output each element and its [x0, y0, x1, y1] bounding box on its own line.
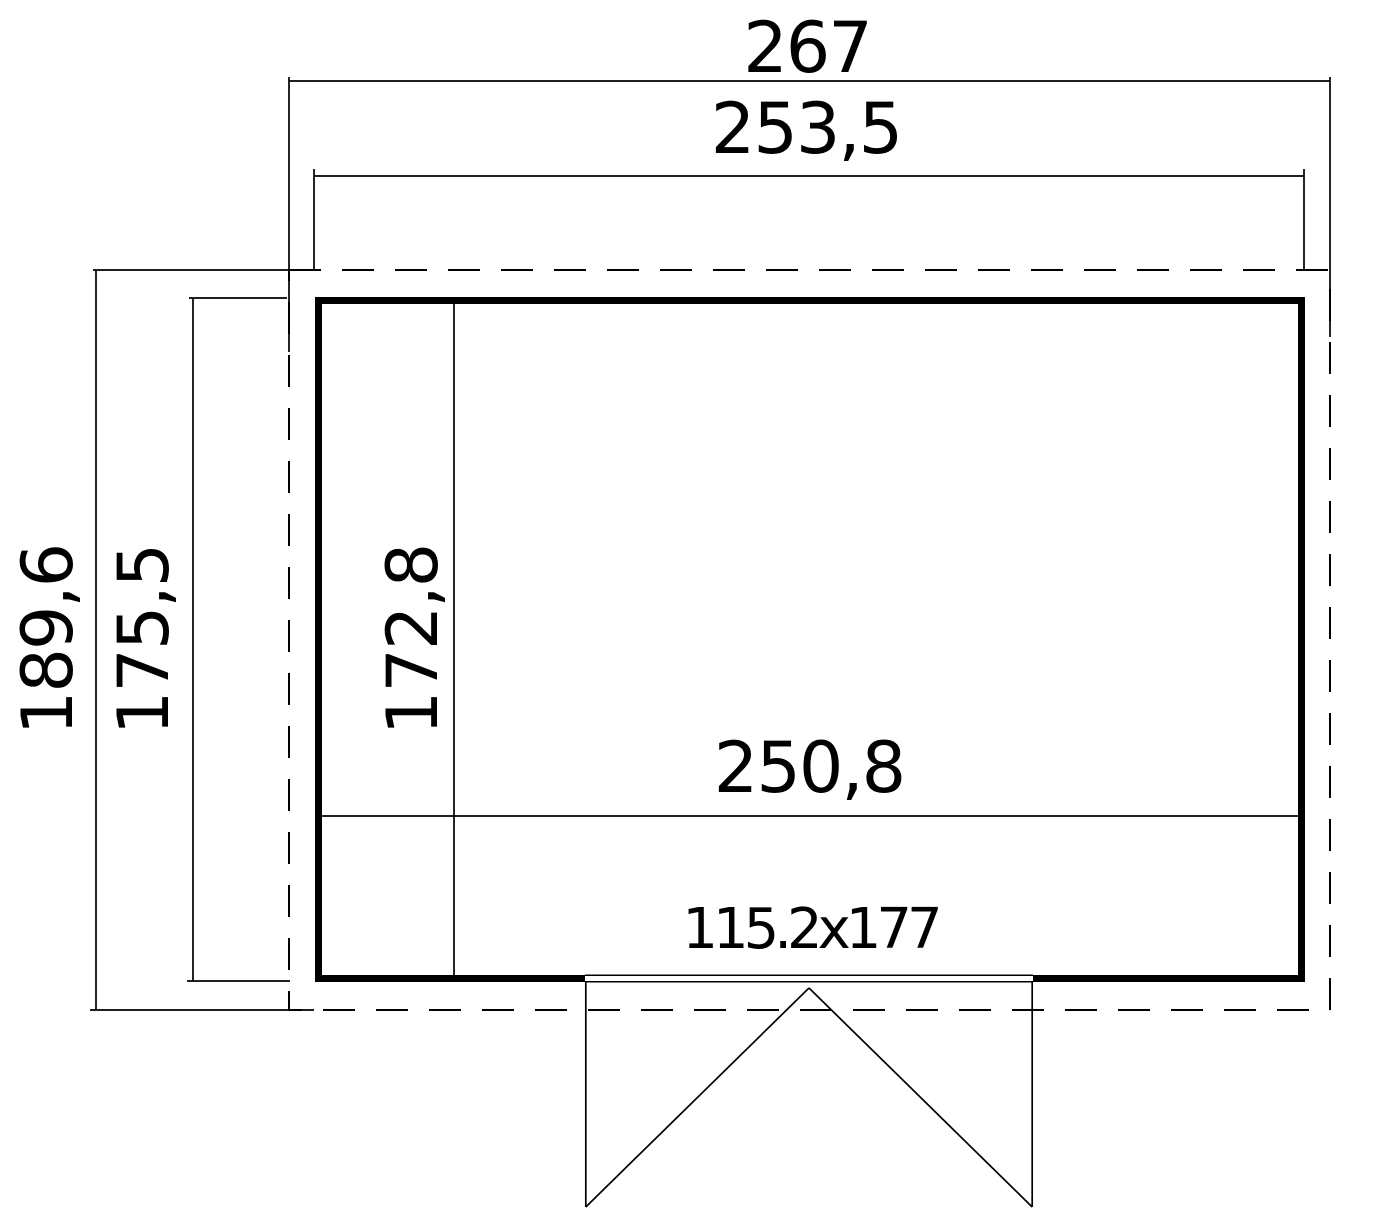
floor-plan-svg: 267 253,5 189,6 175,5 172,8 250,8 115.2x…: [0, 0, 1397, 1229]
inner-depth-label: 172,8: [372, 545, 454, 735]
wall-left-top-right: [319, 301, 1302, 979]
wall-outline: [315, 301, 1305, 979]
floor-plan-drawing: 267 253,5 189,6 175,5 172,8 250,8 115.2x…: [0, 0, 1397, 1229]
door-swing-left: [586, 988, 809, 1207]
inner-width-label: 250,8: [714, 727, 904, 809]
dimension-labels: 267 253,5 189,6 175,5 172,8 250,8 115.2x…: [7, 7, 938, 962]
dimension-lines: [96, 81, 1330, 1010]
door-swing-right: [809, 988, 1032, 1207]
wall-depth-label: 175,5: [103, 545, 185, 735]
roof-depth-label: 189,6: [7, 545, 89, 735]
wall-width-label: 253,5: [711, 88, 901, 170]
door-size-label: 115.2x177: [682, 897, 938, 962]
roof-width-label: 267: [743, 7, 871, 89]
extension-lines: [90, 77, 1330, 1010]
